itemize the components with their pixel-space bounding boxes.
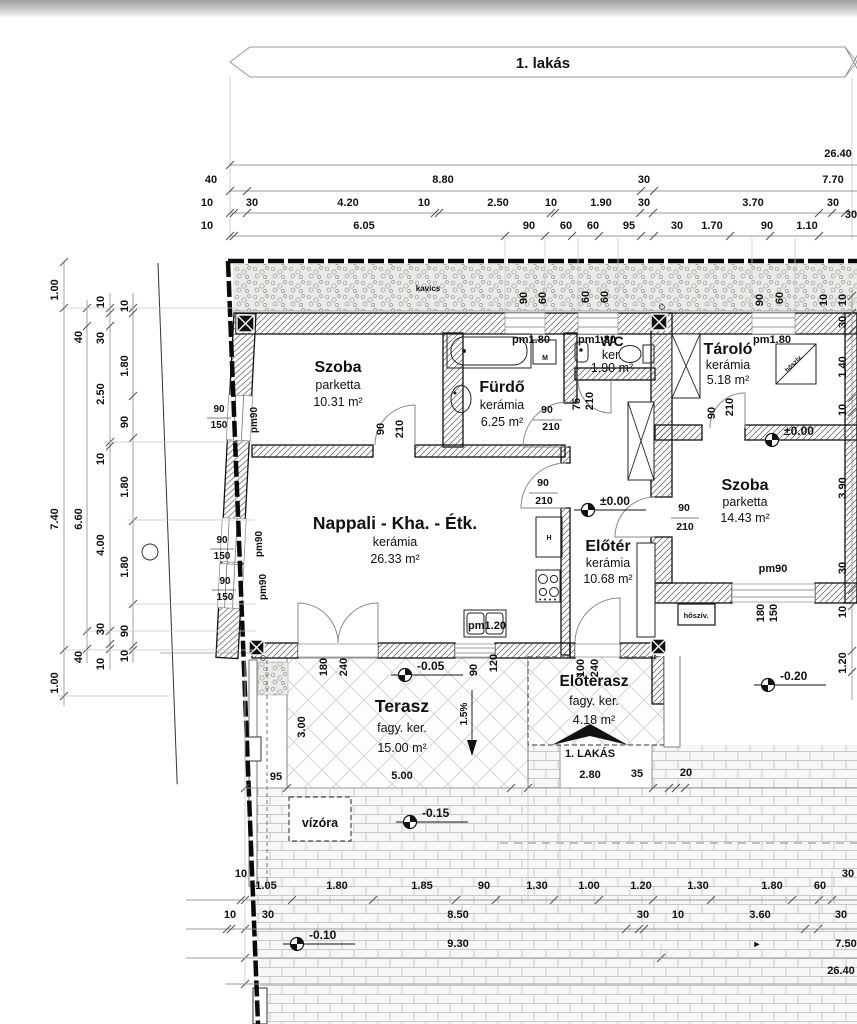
dim-label: 30 [671, 220, 683, 232]
dim-label: 95 [270, 771, 282, 783]
dim-label: pm90 [759, 563, 788, 575]
dim-label: 30 [827, 197, 839, 209]
room-area: 4.18 m² [573, 713, 615, 727]
dim-label: 10 [837, 606, 849, 618]
dim-label: 10 [119, 650, 131, 662]
dim-label: 1.70 [701, 220, 722, 232]
dim-label: 2.80 [579, 769, 600, 781]
dim-label: pm90 [254, 531, 265, 558]
dim-label: 90 [375, 423, 387, 435]
room-name: Terasz [375, 696, 429, 716]
room-name: Nappali - Kha. - Étk. [313, 512, 477, 533]
dim-label: 10 [235, 868, 247, 880]
dim-label: 1.20 [630, 880, 651, 892]
dim-label: 60 [537, 292, 549, 304]
dim-label: 180 [318, 658, 330, 676]
dim-label: 1.00 [578, 880, 599, 892]
dim-label: kavics [416, 284, 441, 293]
dim-label: 10 [545, 197, 557, 209]
terrace-door-opening [298, 644, 378, 657]
window-high [578, 313, 618, 334]
dim-label: 30 [842, 868, 854, 880]
dim-label: 30 [638, 197, 650, 209]
dim-label: 1.00 [49, 672, 61, 693]
room-area: 15.00 m² [377, 741, 426, 755]
dim-label: 60 [587, 220, 599, 232]
dim-label: 8.50 [447, 909, 468, 921]
dim-label: 90 [754, 294, 766, 306]
dim-label: 10 [837, 404, 849, 416]
dim-label: 10 [672, 909, 684, 921]
dim-label: 1.30 [526, 880, 547, 892]
dim-label: 1.80 [761, 880, 782, 892]
dim-label: 1.90 [590, 197, 611, 209]
dim-label: 10 [119, 300, 131, 312]
dim-label: 10 [95, 453, 107, 465]
dim-label: pm1.80 [753, 334, 791, 346]
dim-label: 1.85 [411, 880, 432, 892]
dim-label: 90 [761, 220, 773, 232]
dim-label: 90 [219, 576, 231, 587]
dim-label: 210 [676, 521, 694, 533]
window-south [732, 584, 815, 602]
dim-label: 10 [201, 220, 213, 232]
room-material: fagy. ker. [569, 694, 619, 708]
room-name: WC [600, 333, 623, 349]
dim-label: 90 [523, 220, 535, 232]
room-material: kerámia [373, 535, 418, 549]
dim-label: 3.60 [749, 909, 770, 921]
room-material: ker. [602, 348, 622, 362]
dim-label: 150 [217, 592, 234, 603]
dim-label: 1.00 [49, 279, 61, 300]
dim-label: 7.40 [49, 508, 61, 529]
dim-label: 120 [488, 654, 500, 672]
entrance-label: 1. LAKÁS [565, 747, 615, 760]
dim-label: 90 [478, 880, 490, 892]
dim-label: 180 [755, 604, 767, 622]
room-area: 26.33 m² [370, 552, 419, 566]
room-area: 10.68 m² [583, 572, 632, 586]
room-area: 14.43 m² [720, 511, 769, 525]
dim-label: 9.30 [447, 938, 468, 950]
dim-label: 30 [845, 209, 857, 221]
top-gradient [0, 0, 857, 18]
dim-label: 40 [73, 331, 85, 343]
room-material: parketta [722, 495, 767, 509]
dim-label: 4.20 [337, 197, 358, 209]
dim-label: 1.40 [837, 356, 849, 377]
dim-label: 10 [95, 658, 107, 670]
dim-label: 90 [706, 407, 718, 419]
hall-cabinet [637, 543, 655, 637]
dim-label: 10 [224, 909, 236, 921]
dim-label: 40 [73, 651, 85, 663]
dim-label: 2.50 [487, 197, 508, 209]
room-name: Tároló [704, 341, 753, 358]
level-value: -0.20 [780, 669, 808, 683]
level-value: ±0.00 [600, 494, 630, 508]
dim-label: 75 [571, 398, 583, 410]
dim-label: 10 [818, 294, 830, 306]
dim-label: 30 [835, 909, 847, 921]
floor-plan-page: 1. lakás [0, 0, 857, 1024]
dim-label: 240 [338, 658, 350, 676]
dim-label: 60 [814, 880, 826, 892]
dim-label: 90 [119, 416, 131, 428]
room-area: 5.18 m² [707, 373, 749, 387]
room-name: Szoba [721, 477, 768, 494]
dim-label: 150 [768, 604, 780, 622]
room-material: fagy. ker. [377, 721, 427, 735]
room-name: Fürdő [479, 379, 525, 396]
dim-label: 26.40 [824, 148, 852, 160]
dim-label: 3.00 [296, 716, 308, 737]
dim-label: pm90 [249, 407, 260, 434]
dim-label: 30 [638, 174, 650, 186]
dim-label: 1.80 [326, 880, 347, 892]
dim-label: pm1.80 [512, 334, 550, 346]
dim-label: 4.00 [95, 534, 107, 555]
dim-label: 1.80 [119, 355, 131, 376]
dim-label: 60 [599, 291, 611, 303]
dim-label: 90 [216, 535, 228, 546]
window-high [505, 313, 545, 334]
dim-label: 150 [211, 420, 228, 431]
dim-label: pm1.20 [468, 620, 506, 632]
room-material: parketta [315, 378, 360, 392]
entrance-door-opening [575, 644, 620, 657]
dim-label: 1.80 [119, 476, 131, 497]
dim-label: 30 [637, 909, 649, 921]
dim-label: 35 [631, 768, 643, 780]
room-area: 6.25 m² [481, 415, 523, 429]
dim-label: 30 [95, 332, 107, 344]
dim-label: 60 [774, 292, 786, 304]
dim-label: 210 [394, 420, 406, 438]
room-name: Szoba [314, 359, 361, 376]
dim-label: 30 [246, 197, 258, 209]
title-banner: 1. lakás [230, 47, 857, 240]
dim-label: 20 [680, 767, 692, 779]
dim-label: 95 [623, 220, 635, 232]
dim-label: 90 [518, 292, 530, 304]
dim-label: 8.80 [432, 174, 453, 186]
level-value: -0.10 [309, 928, 337, 942]
dim-label: 10 [95, 296, 107, 308]
room-material: kerámia [480, 398, 525, 412]
room-name: Előtér [585, 538, 630, 555]
dim-label: M [542, 355, 548, 362]
boundary-point-marker [142, 544, 158, 560]
dim-label: 1.80 [119, 556, 131, 577]
level-value: ±0.00 [784, 424, 814, 438]
dim-label: 30 [95, 623, 107, 635]
dim-label: 1.30 [687, 880, 708, 892]
dim-label: pm90 [258, 574, 269, 601]
dim-label: 30 [837, 562, 849, 574]
window-high [752, 313, 795, 334]
banner-label: 1. lakás [516, 55, 570, 72]
level-value: -0.05 [417, 659, 445, 673]
dim-label: 7.50 [835, 938, 856, 950]
dim-label: 90 [213, 404, 225, 415]
dim-label: 210 [542, 421, 560, 433]
dim-label: 30 [837, 316, 849, 328]
dim-label: 1.20 [837, 652, 849, 673]
dim-label: 210 [535, 495, 553, 507]
room-area: 1.90 m² [591, 361, 633, 375]
floor-plan-drawing: 1. lakás [0, 0, 857, 1024]
chimney-shaft [672, 334, 700, 398]
room-area: 10.31 m² [313, 395, 362, 409]
dim-label: 5.00 [391, 770, 412, 782]
dim-label: 3.90 [837, 477, 849, 498]
dim-label: 210 [584, 392, 596, 410]
dim-label: 90 [537, 477, 549, 489]
dim-label: 1.05 [255, 880, 276, 892]
room-name: Előterasz [560, 673, 629, 690]
dim-label: 60 [560, 220, 572, 232]
wardrobe [628, 402, 654, 480]
dim-label: 90 [541, 404, 553, 416]
dim-label: 90 [678, 502, 690, 514]
dim-label: 6.60 [73, 508, 85, 529]
dim-label: 90 [119, 625, 131, 637]
dim-label: 3.70 [742, 197, 763, 209]
dim-label: 6.05 [353, 220, 374, 232]
dim-label: 60 [580, 291, 592, 303]
dim-label: 10 [418, 197, 430, 209]
dim-label: hőszív. [684, 611, 709, 620]
level-value: -0.15 [422, 806, 450, 820]
dim-label: 30 [262, 909, 274, 921]
dim-label: 150 [214, 551, 231, 562]
room-material: kerámia [586, 556, 631, 570]
dim-label: 1.5% [459, 702, 470, 725]
dim-label: 210 [724, 398, 736, 416]
dim-label: 26.40 [827, 965, 855, 977]
dim-label: 40 [205, 174, 217, 186]
dim-label: H [546, 535, 551, 542]
dim-label: 7.70 [822, 174, 843, 186]
dim-label: vízóra [302, 816, 339, 830]
dim-label: 10 [837, 294, 849, 306]
dim-label: ► [753, 939, 762, 949]
room-material: kerámia [706, 358, 751, 372]
dim-label: 1.10 [796, 220, 817, 232]
dim-label: 90 [468, 664, 480, 676]
dim-label: 2.50 [95, 383, 107, 404]
dim-label: 10 [201, 197, 213, 209]
